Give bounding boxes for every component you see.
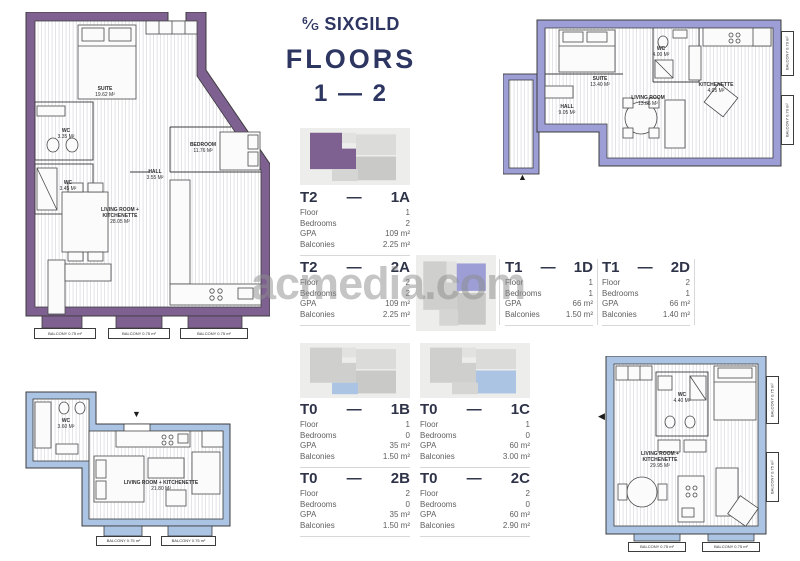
spec-row-bedrooms: Bedrooms0 [300,500,410,511]
unit-title: T2 — 1A [300,189,410,206]
spec-label: GPA [300,510,316,521]
spec-label: Floor [420,489,438,500]
room-label-wc: WC 4.40 m² [674,392,691,404]
keyplan-unit-b [439,310,458,326]
spec-label: Balconies [300,310,335,321]
balcony-label: BALCONY 0.75 m² [96,536,151,546]
unit-number: 1C [511,401,530,418]
spec-value: 35 m² [390,441,410,452]
spec-value: 35 m² [390,510,410,521]
balcony-label: BALCONY 0.75 m² [34,328,96,339]
dash: — [347,470,362,487]
spec-row-balconies: Balconies2.25 m² [300,310,410,321]
spec-row-floor: Floor1 [300,208,410,219]
unit-spec-t0-2b: T0 — 2B Floor2 Bedrooms0 GPA35 m² Balcon… [300,470,410,537]
spec-row-bedrooms: Bedrooms0 [420,431,530,442]
room-label-suite: SUITE 19.62 m² [95,86,115,98]
floorplan-sheet: 6 ⁄ G SIXGILD FLOORS 1 — 2 acmedia.com [0,0,800,561]
spec-label: Bedrooms [602,289,638,300]
keyplan-unit-c [476,371,516,394]
keyplan-t2-drawing [300,128,410,185]
unit-number: 1D [574,259,593,276]
unit-spec-t0-2c: T0 — 2C Floor2 Bedrooms0 GPA60 m² Balcon… [420,470,530,537]
unit-spec-t0-1b: T0 — 1B Floor1 Bedrooms0 GPA35 m² Balcon… [300,401,410,468]
watermark: acmedia.com [251,258,525,310]
unit-number: 1A [391,189,410,206]
keyplan-core [462,348,476,358]
spec-label: Bedrooms [420,431,456,442]
room-label-wc1: WC 3.35 m² [58,128,75,140]
room-area: 4.40 m² [674,398,691,404]
spec-value: 1 [686,289,690,300]
unit-spec-t2-1a: T2 — 1A Floor1 Bedrooms2 GPA109 m² Balco… [300,189,410,256]
spec-row-floor: Floor1 [300,420,410,431]
balcony-label: BALCONY 0.70 m² [781,31,794,76]
spec-value: 66 m² [573,299,593,310]
spec-label: GPA [420,510,436,521]
unit-number: 1B [391,401,410,418]
balcony-label: BALCONY 0.75 m² [180,328,248,339]
spec-value: 2.25 m² [383,240,410,251]
spec-row-gpa: GPA66 m² [602,299,690,310]
room-area: 4.05 m² [699,88,734,94]
orientation-arrow-left-icon: ◀ [598,412,605,421]
unit-type: T0 [300,401,318,418]
spec-value: 2 [406,489,410,500]
spec-label: Floor [420,420,438,431]
spec-value: 60 m² [510,441,530,452]
room-area: 13.40 m² [590,82,610,88]
spec-value: 0 [526,431,530,442]
unit-number: 2B [391,470,410,487]
room-area: 11.76 m² [190,148,216,154]
room-label-living: LIVING ROOM + KITCHENETTE 21.80 m² [116,480,206,492]
spec-label: Balconies [505,310,540,321]
keyplan-unit-b [452,383,478,394]
spec-label: Floor [602,278,620,289]
spec-value: 1 [526,420,530,431]
spec-value: 1.50 m² [383,452,410,463]
spec-row-bedrooms: Bedrooms2 [300,219,410,230]
spec-value: 1.50 m² [566,310,593,321]
unit-number: 2D [671,259,690,276]
room-label-kitchenette: KITCHENETTE 4.05 m² [699,82,734,94]
keyplan-thumbnail-t0b [300,343,410,398]
spec-row-bedrooms: Bedrooms0 [420,500,530,511]
spec-value: 1 [406,208,410,219]
spec-label: Balconies [300,452,335,463]
spec-label: GPA [420,441,436,452]
dash: — [347,189,362,206]
spec-row-balconies: Balconies2.90 m² [420,521,530,532]
floorplan-t0c: WC 4.40 m² LIVING ROOM + KITCHENETTE 29.… [598,356,796,554]
spec-row-balconies: Balconies3.00 m² [420,452,530,463]
spec-value: 2 [686,278,690,289]
spec-value: 3.00 m² [503,452,530,463]
spec-label: Balconies [420,452,455,463]
spec-value: 1 [589,278,593,289]
spec-row-gpa: GPA109 m² [300,229,410,240]
room-area: 28.05 m² [87,219,153,225]
spec-label: Bedrooms [420,500,456,511]
spec-row-balconies: Balconies1.50 m² [300,452,410,463]
keyplan-core [342,348,356,358]
spec-value: 2.90 m² [503,521,530,532]
unit-number: 2C [511,470,530,487]
orientation-arrow-up-icon: ▲ [518,173,527,182]
spec-row-balconies: Balconies1.40 m² [602,310,690,321]
spec-label: Floor [300,489,318,500]
spec-row-bedrooms: Bedrooms0 [300,431,410,442]
spec-label: Balconies [300,240,335,251]
page-title: FLOORS [283,44,419,75]
spec-label: GPA [300,229,316,240]
divider [597,259,598,325]
spec-row-floor: Floor1 [420,420,530,431]
unit-title: T0 — 1C [420,401,530,418]
keyplan-unit-b [332,169,358,181]
balcony-label: BALCONY 0.75 m² [766,376,779,424]
spec-value: 0 [406,500,410,511]
dash: — [467,470,482,487]
keyplan-t0b-drawing [300,343,410,398]
room-label-wc: WC 3.60 m² [58,418,75,430]
spec-row-floor: Floor2 [602,278,690,289]
unit-type: T0 [300,470,318,487]
keyplan-unit-c [356,371,396,394]
balcony-label: BALCONY 0.75 m² [766,452,779,502]
spec-label: Floor [300,420,318,431]
balcony-label: BALCONY 0.75 m² [702,542,760,552]
room-name: LIVING ROOM + KITCHENETTE [87,207,153,219]
spec-value: 2.25 m² [383,310,410,321]
spec-value: 109 m² [385,229,410,240]
floorplan-t0b-drawing [16,386,278,548]
balcony-label: BALCONY 0.75 m² [161,536,216,546]
dash: — [467,401,482,418]
room-label-hall: HALL 3.55 m² [147,169,164,181]
balcony-label: BALCONY 0.75 m² [628,542,686,552]
unit-type: T0 [420,401,438,418]
keyplan-thumbnail-t2 [300,128,410,185]
unit-title: T0 — 2B [300,470,410,487]
dash: — [347,401,362,418]
room-area: 4.00 m² [653,52,670,58]
spec-label: Balconies [602,310,637,321]
room-label-suite: SUITE 13.40 m² [590,76,610,88]
floors-range: 1 — 2 [283,80,419,108]
unit-spec-t1-2d: T1 — 2D Floor2 Bedrooms1 GPA66 m² Balcon… [602,259,690,326]
unit-title: T0 — 1B [300,401,410,418]
balcony-label: BALCONY 0.75 m² [108,328,170,339]
divider [694,259,695,325]
floorplan-t1: SUITE 13.40 m² WC 4.00 m² KITCHENETTE 4.… [503,16,795,186]
spec-value: 60 m² [510,510,530,521]
spec-value: 1.40 m² [663,310,690,321]
unit-type: T0 [420,470,438,487]
room-label-living: LIVING ROOM + KITCHENETTE 28.05 m² [87,207,153,225]
spec-label: Bedrooms [300,500,336,511]
floorplan-t0b: WC 3.60 m² LIVING ROOM + KITCHENETTE 21.… [16,386,278,548]
spec-row-gpa: GPA60 m² [420,510,530,521]
room-area: 19.62 m² [95,92,115,98]
unit-type: T2 [300,189,318,206]
spec-row-balconies: Balconies1.50 m² [300,521,410,532]
keyplan-core [342,133,356,143]
room-area: 3.60 m² [58,424,75,430]
floorplan-t2: SUITE 19.62 m² WC 3.35 m² WC 3.45 m² BED… [20,12,270,342]
keyplan-unit-c [356,157,396,181]
keyplan-unit-d [356,349,396,369]
unit-spec-t0-1c: T0 — 1C Floor1 Bedrooms0 GPA60 m² Balcon… [420,401,530,468]
room-label-living: LIVING ROOM + KITCHENETTE 29.95 m² [629,451,691,469]
spec-row-gpa: GPA60 m² [420,441,530,452]
spec-value: 0 [526,500,530,511]
sixgild-logo-icon: 6 ⁄ G [302,18,319,32]
room-area: 3.35 m² [58,134,75,140]
room-area: 21.80 m² [116,486,206,492]
unit-title: T1 — 2D [602,259,690,276]
room-label-wc: WC 4.00 m² [653,46,670,58]
spec-row-balconies: Balconies1.50 m² [505,310,593,321]
keyplan-unit-d [476,349,516,369]
room-label-wc2: WC 3.45 m² [60,180,77,192]
room-area: 29.95 m² [629,463,691,469]
room-label-bedroom: BEDROOM 11.76 m² [190,142,216,154]
spec-label: Bedrooms [300,431,336,442]
room-label-living: LIVING ROOM 13.85 m² [631,95,665,107]
room-area: 3.55 m² [147,175,164,181]
spec-label: GPA [300,441,316,452]
spec-value: 1 [589,289,593,300]
spec-label: GPA [602,299,618,310]
spec-label: Bedrooms [300,219,336,230]
keyplan-unit-d [356,134,396,155]
brand-line: 6 ⁄ G SIXGILD [283,14,419,35]
spec-label: Floor [300,208,318,219]
logo-denominator: G [311,24,319,32]
orientation-arrow-down-icon: ▼ [132,410,141,419]
spec-row-bedrooms: Bedrooms1 [602,289,690,300]
brand-name: SIXGILD [324,14,400,35]
spec-value: 1 [406,420,410,431]
room-area: 3.45 m² [60,186,77,192]
header: 6 ⁄ G SIXGILD FLOORS 1 — 2 [283,14,419,108]
unit-title: T0 — 2C [420,470,530,487]
spec-row-floor: Floor2 [300,489,410,500]
spec-value: 1.50 m² [383,521,410,532]
dash: — [541,259,556,276]
room-area: 9.05 m² [559,110,576,116]
spec-row-gpa: GPA35 m² [300,510,410,521]
balcony-label: BALCONY 0.70 m² [781,95,794,145]
spec-value: 0 [406,431,410,442]
spec-value: 2 [406,219,410,230]
room-label-hall: HALL 9.05 m² [559,104,576,116]
keyplan-t0c-drawing [420,343,530,398]
spec-value: 2 [526,489,530,500]
spec-label: Balconies [300,521,335,532]
keyplan-unit-b [332,383,358,394]
dash: — [638,259,653,276]
spec-row-balconies: Balconies2.25 m² [300,240,410,251]
room-area: 13.85 m² [631,101,665,107]
unit-type: T1 [602,259,620,276]
spec-row-gpa: GPA35 m² [300,441,410,452]
spec-label: Balconies [420,521,455,532]
spec-row-floor: Floor2 [420,489,530,500]
floorplan-t2-drawing [20,12,270,342]
keyplan-thumbnail-t0c [420,343,530,398]
spec-value: 66 m² [670,299,690,310]
room-name: LIVING ROOM + KITCHENETTE [629,451,691,463]
